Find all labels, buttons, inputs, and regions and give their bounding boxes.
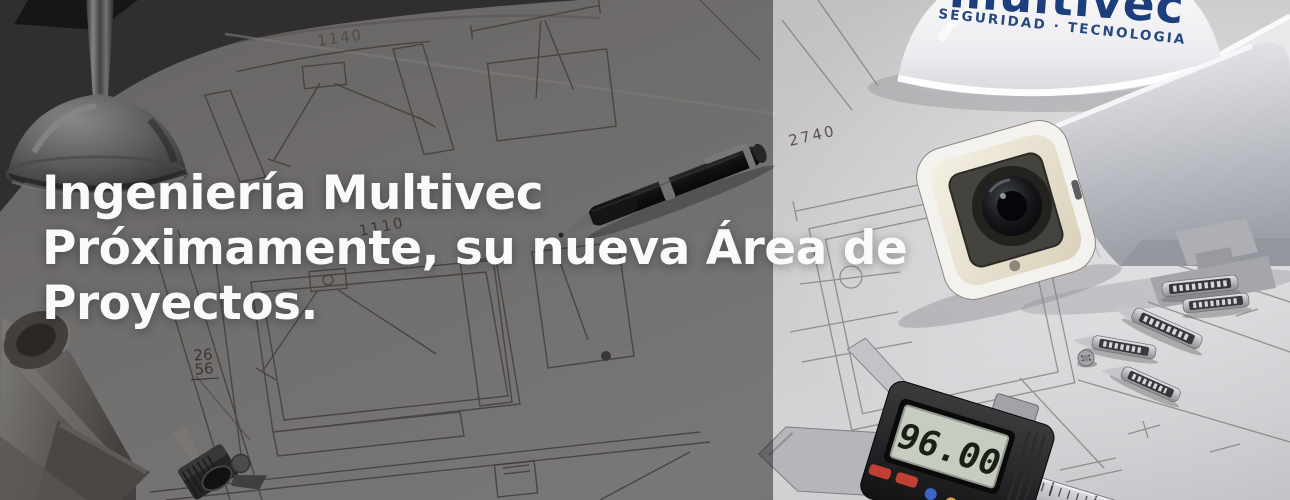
hero-heading: Ingeniería Multivec Próximamente, su nue… xyxy=(42,166,942,331)
hero-banner: 1140 xyxy=(0,0,1290,500)
hero-heading-line-1: Ingeniería Multivec xyxy=(42,166,942,221)
hero-heading-line-3: Proyectos. xyxy=(42,276,942,331)
svg-text:56: 56 xyxy=(194,359,214,378)
hero-heading-line-2: Próximamente, su nueva Área de xyxy=(42,221,942,276)
